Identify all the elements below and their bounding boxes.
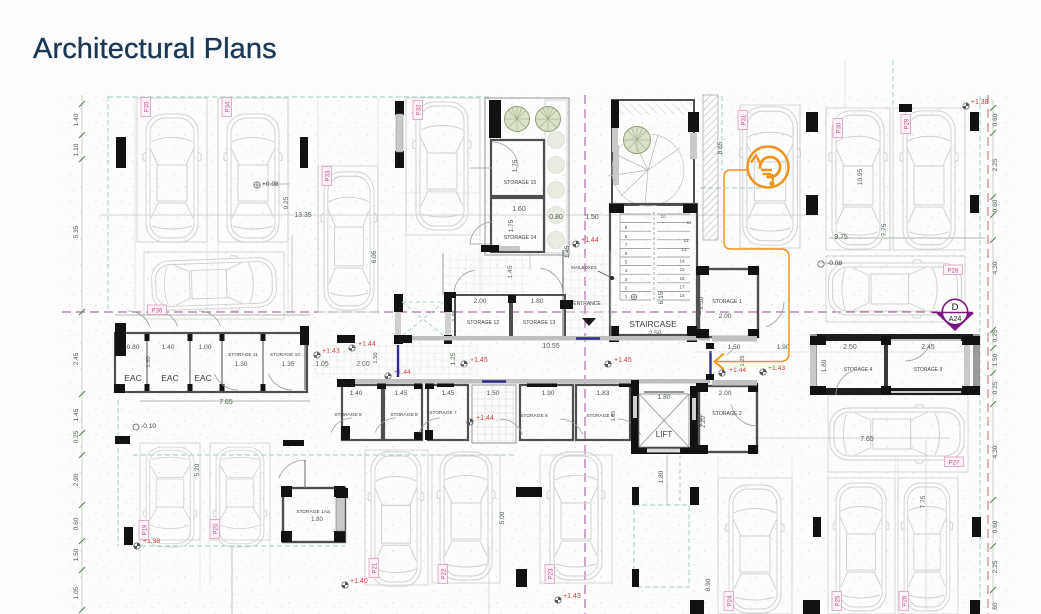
svg-text:13.35: 13.35 bbox=[294, 212, 311, 219]
svg-text:16: 16 bbox=[679, 276, 685, 281]
svg-text:EAC: EAC bbox=[161, 373, 178, 383]
svg-text:0.60: 0.60 bbox=[73, 517, 80, 530]
svg-text:MAILBOXES: MAILBOXES bbox=[571, 265, 596, 270]
svg-text:1.45: 1.45 bbox=[442, 390, 455, 397]
svg-text:+0.08: +0.08 bbox=[262, 181, 279, 188]
svg-text:4: 4 bbox=[625, 268, 628, 273]
svg-text:+1.43: +1.43 bbox=[768, 365, 785, 372]
svg-text:1.38: 1.38 bbox=[452, 310, 458, 321]
svg-text:10.95: 10.95 bbox=[857, 168, 864, 185]
svg-text:1.85: 1.85 bbox=[611, 411, 617, 422]
svg-text:1.83: 1.83 bbox=[597, 390, 610, 397]
svg-text:P29: P29 bbox=[905, 118, 911, 129]
svg-text:STORAGE 9: STORAGE 9 bbox=[334, 412, 362, 418]
svg-text:-0.10: -0.10 bbox=[141, 423, 156, 430]
svg-text:2.00: 2.00 bbox=[719, 313, 732, 320]
svg-text:1.80: 1.80 bbox=[311, 517, 323, 523]
svg-text:0.25: 0.25 bbox=[992, 329, 999, 342]
svg-text:1.80: 1.80 bbox=[531, 298, 544, 305]
svg-text:P27: P27 bbox=[949, 461, 960, 467]
svg-text:1.50: 1.50 bbox=[373, 352, 379, 363]
svg-text:STORAGE 5: STORAGE 5 bbox=[586, 413, 614, 419]
svg-text:P36: P36 bbox=[152, 309, 163, 315]
svg-text:P34: P34 bbox=[226, 101, 232, 112]
svg-text:+1.45: +1.45 bbox=[470, 357, 488, 364]
svg-text:1.05: 1.05 bbox=[73, 586, 80, 599]
svg-text:+1.44: +1.44 bbox=[394, 369, 411, 376]
svg-text:2.25: 2.25 bbox=[992, 560, 999, 573]
svg-text:.60: .60 bbox=[992, 602, 999, 611]
svg-text:STORAGE 7: STORAGE 7 bbox=[429, 410, 457, 416]
svg-text:STORAGE 4: STORAGE 4 bbox=[844, 367, 873, 373]
svg-text:1.50: 1.50 bbox=[585, 214, 599, 221]
svg-text:13: 13 bbox=[681, 247, 687, 252]
svg-text:2.90: 2.90 bbox=[73, 473, 80, 486]
svg-text:STORAGE 8: STORAGE 8 bbox=[390, 412, 418, 418]
svg-text:STORAGE 1Aa: STORAGE 1Aa bbox=[296, 509, 330, 515]
svg-text:1.45: 1.45 bbox=[73, 408, 80, 421]
svg-text:11: 11 bbox=[687, 220, 692, 225]
svg-text:STORAGE 13: STORAGE 13 bbox=[523, 320, 556, 326]
svg-text:1: 1 bbox=[625, 294, 628, 299]
svg-text:LIFT: LIFT bbox=[656, 430, 673, 439]
svg-text:-0.08: -0.08 bbox=[827, 260, 842, 267]
svg-text:0.80: 0.80 bbox=[127, 344, 140, 351]
svg-text:9: 9 bbox=[625, 225, 628, 230]
svg-text:STORAGE 10: STORAGE 10 bbox=[270, 352, 300, 358]
svg-text:0.25: 0.25 bbox=[73, 430, 80, 443]
svg-text:1.40: 1.40 bbox=[162, 344, 175, 351]
svg-text:7.75: 7.75 bbox=[920, 495, 927, 508]
svg-text:+1.38: +1.38 bbox=[971, 99, 989, 106]
svg-text:P31: P31 bbox=[742, 114, 748, 125]
svg-text:6.05: 6.05 bbox=[371, 250, 378, 263]
svg-text:2.25: 2.25 bbox=[992, 158, 999, 171]
svg-text:1.60: 1.60 bbox=[512, 206, 526, 213]
svg-text:8: 8 bbox=[625, 234, 628, 239]
svg-text:1.50: 1.50 bbox=[487, 390, 500, 397]
svg-text:2.50: 2.50 bbox=[649, 330, 662, 337]
svg-text:STORAGE 3: STORAGE 3 bbox=[914, 367, 943, 373]
svg-text:1.80: 1.80 bbox=[658, 394, 671, 401]
svg-text:+1.40: +1.40 bbox=[350, 578, 368, 585]
svg-text:1.50: 1.50 bbox=[992, 353, 999, 366]
svg-text:1.50: 1.50 bbox=[73, 548, 80, 561]
svg-text:7.65: 7.65 bbox=[860, 436, 874, 443]
svg-text:4.30: 4.30 bbox=[992, 261, 999, 274]
svg-text:5.00: 5.00 bbox=[499, 511, 506, 524]
svg-text:STORAGE 15: STORAGE 15 bbox=[504, 180, 537, 186]
svg-text:P35: P35 bbox=[145, 101, 151, 112]
svg-text:1.45: 1.45 bbox=[395, 390, 408, 397]
svg-text:P21: P21 bbox=[373, 562, 379, 573]
svg-text:1.80: 1.80 bbox=[821, 359, 828, 372]
svg-text:STAIRCASE: STAIRCASE bbox=[629, 319, 677, 329]
svg-text:1.75: 1.75 bbox=[512, 159, 519, 172]
svg-text:STORAGE 1: STORAGE 1 bbox=[712, 299, 742, 305]
svg-text:1.90: 1.90 bbox=[777, 344, 790, 351]
svg-text:P23: P23 bbox=[549, 568, 555, 579]
svg-text:STORAGE 2: STORAGE 2 bbox=[712, 411, 742, 417]
svg-text:5.20: 5.20 bbox=[194, 463, 201, 476]
svg-text:ENTRANCE: ENTRANCE bbox=[573, 301, 601, 307]
svg-text:P25: P25 bbox=[836, 595, 842, 606]
svg-text:7.75: 7.75 bbox=[881, 223, 888, 236]
svg-text:P24: P24 bbox=[728, 595, 734, 606]
svg-text:18: 18 bbox=[679, 293, 685, 298]
svg-text:0.60: 0.60 bbox=[992, 113, 999, 126]
svg-text:2.30: 2.30 bbox=[698, 296, 705, 309]
svg-text:2.50: 2.50 bbox=[843, 344, 857, 351]
svg-text:12: 12 bbox=[683, 238, 689, 243]
svg-text:1.30: 1.30 bbox=[235, 361, 248, 368]
svg-text:P30: P30 bbox=[837, 122, 843, 133]
svg-text:0.80: 0.80 bbox=[549, 214, 563, 221]
svg-text:6: 6 bbox=[625, 251, 628, 256]
svg-text:1.45: 1.45 bbox=[507, 265, 514, 278]
svg-text:1.90: 1.90 bbox=[542, 390, 555, 397]
svg-text:+1.44: +1.44 bbox=[476, 415, 494, 422]
svg-text:5.35: 5.35 bbox=[73, 225, 80, 238]
svg-text:EAC: EAC bbox=[194, 373, 211, 383]
svg-text:1.75: 1.75 bbox=[508, 219, 515, 232]
svg-text:9.25: 9.25 bbox=[283, 196, 290, 209]
svg-text:1.00: 1.00 bbox=[199, 344, 212, 351]
svg-text:7: 7 bbox=[625, 242, 628, 247]
svg-text:+1.44: +1.44 bbox=[581, 237, 599, 244]
svg-text:2.00: 2.00 bbox=[719, 390, 732, 397]
svg-text:P22: P22 bbox=[442, 568, 448, 579]
svg-text:15: 15 bbox=[679, 267, 685, 272]
svg-text:2.45: 2.45 bbox=[73, 352, 80, 365]
svg-text:1.45: 1.45 bbox=[564, 245, 571, 258]
svg-text:10.55: 10.55 bbox=[542, 343, 559, 350]
svg-text:0.60: 0.60 bbox=[992, 520, 999, 533]
svg-text:14: 14 bbox=[679, 259, 685, 264]
svg-text:D: D bbox=[952, 302, 959, 313]
svg-text:P28: P28 bbox=[948, 269, 959, 275]
svg-text:5: 5 bbox=[625, 260, 628, 265]
svg-text:1.35: 1.35 bbox=[282, 361, 295, 368]
svg-text:STORAGE 14: STORAGE 14 bbox=[504, 235, 537, 241]
svg-text:EAC: EAC bbox=[124, 373, 141, 383]
svg-text:P26: P26 bbox=[903, 595, 909, 606]
svg-text:A24: A24 bbox=[949, 314, 962, 323]
svg-text:2.00: 2.00 bbox=[474, 298, 487, 305]
svg-text:3: 3 bbox=[625, 277, 628, 282]
svg-text:+1.44: +1.44 bbox=[358, 341, 376, 348]
svg-text:1.80: 1.80 bbox=[658, 470, 665, 483]
svg-text:0.25: 0.25 bbox=[992, 381, 999, 394]
svg-text:8.65: 8.65 bbox=[717, 141, 724, 154]
svg-text:P33: P33 bbox=[326, 170, 332, 181]
svg-text:8.90: 8.90 bbox=[705, 578, 712, 591]
svg-text:1.80: 1.80 bbox=[146, 356, 152, 367]
svg-text:P19: P19 bbox=[143, 524, 149, 535]
svg-text:P20: P20 bbox=[214, 523, 220, 534]
svg-text:+1.45: +1.45 bbox=[614, 357, 632, 364]
svg-text:17: 17 bbox=[679, 284, 685, 289]
svg-text:STORAGE 12: STORAGE 12 bbox=[467, 320, 500, 326]
svg-text:7.65: 7.65 bbox=[219, 399, 233, 406]
svg-text:2.20: 2.20 bbox=[701, 416, 707, 428]
svg-text:10: 10 bbox=[660, 214, 666, 219]
svg-text:0.60: 0.60 bbox=[992, 199, 999, 212]
svg-text:1.85: 1.85 bbox=[381, 409, 387, 420]
svg-text:1.50: 1.50 bbox=[728, 344, 741, 351]
svg-text:1.40: 1.40 bbox=[350, 390, 363, 397]
svg-text:1.40: 1.40 bbox=[73, 113, 80, 126]
svg-text:P32: P32 bbox=[417, 104, 423, 115]
svg-text:STORAGE 11: STORAGE 11 bbox=[228, 352, 258, 358]
svg-text:9.75: 9.75 bbox=[834, 234, 848, 241]
svg-text:+1.43: +1.43 bbox=[563, 593, 581, 600]
svg-text:1.10: 1.10 bbox=[73, 143, 80, 156]
svg-text:+1.44: +1.44 bbox=[729, 367, 746, 374]
svg-text:4.30: 4.30 bbox=[992, 445, 999, 458]
svg-text:STORAGE 6: STORAGE 6 bbox=[520, 413, 548, 419]
svg-text:6.15: 6.15 bbox=[658, 291, 665, 304]
svg-text:2: 2 bbox=[625, 285, 628, 290]
